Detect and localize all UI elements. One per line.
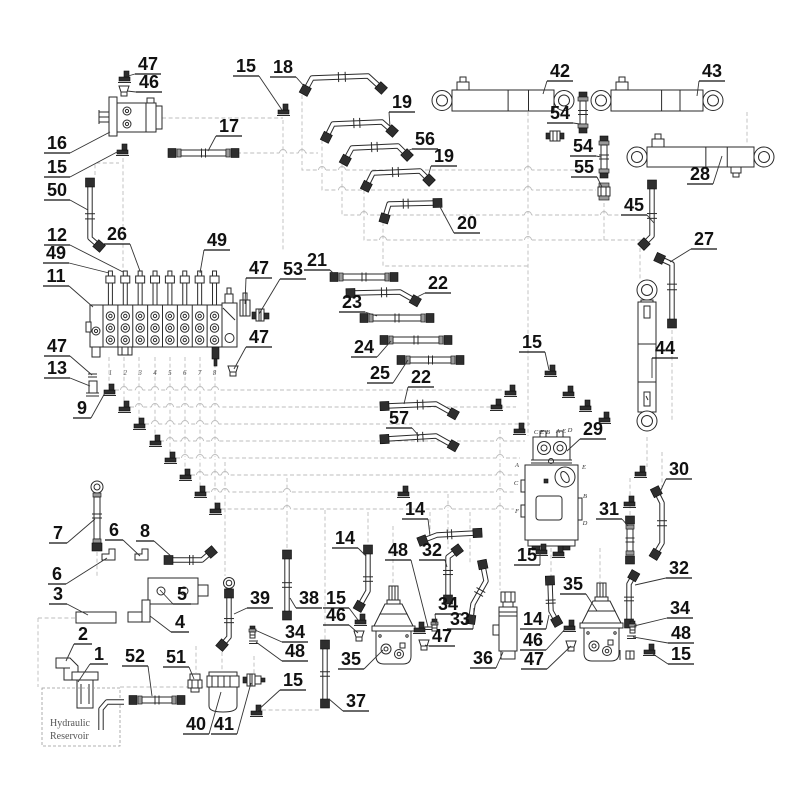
- callout-57: 57: [386, 408, 412, 428]
- svg-text:14: 14: [523, 609, 543, 629]
- svg-text:19: 19: [434, 146, 454, 166]
- callout-45: 45: [621, 195, 647, 215]
- svg-text:12: 12: [47, 225, 67, 245]
- callout-1: 1: [90, 644, 108, 664]
- elbow-fitting: [118, 401, 131, 413]
- svg-text:Reservoir: Reservoir: [50, 731, 90, 742]
- plug-46c: [354, 631, 364, 641]
- callout-47: 47: [521, 649, 547, 669]
- callout-55: 55: [571, 157, 597, 177]
- component-36: [493, 592, 517, 659]
- hose-19: [320, 118, 398, 143]
- hose-7: [91, 481, 103, 551]
- svg-text:54: 54: [550, 103, 570, 123]
- svg-text:B: B: [546, 429, 550, 436]
- svg-text:6: 6: [52, 564, 62, 584]
- elbow-fitting: [504, 385, 517, 397]
- hose-14a: [353, 545, 373, 612]
- svg-text:E: E: [539, 429, 544, 436]
- svg-text:48: 48: [388, 540, 408, 560]
- callout-2: 2: [74, 624, 92, 644]
- svg-text:1: 1: [94, 644, 104, 664]
- svg-text:34: 34: [670, 598, 690, 618]
- svg-text:47: 47: [432, 626, 452, 646]
- fitting-54: [578, 92, 588, 133]
- svg-text:19: 19: [392, 92, 412, 112]
- callout-54: 54: [547, 103, 573, 123]
- callout-19: 19: [389, 92, 415, 112]
- svg-text:E: E: [581, 464, 586, 471]
- callout-36: 36: [470, 648, 496, 668]
- callout-27: 27: [691, 229, 717, 249]
- filter-40-41: [207, 672, 239, 712]
- fitting-34c: [249, 626, 256, 638]
- svg-text:8: 8: [140, 521, 150, 541]
- callout-17: 17: [216, 116, 242, 136]
- callout-4: 4: [171, 612, 189, 632]
- svg-text:22: 22: [428, 273, 448, 293]
- svg-text:1: 1: [109, 369, 113, 377]
- fitting-51: [188, 674, 202, 692]
- elbow-fitting: [413, 622, 426, 634]
- callout-31: 31: [596, 499, 622, 519]
- svg-text:24: 24: [354, 337, 374, 357]
- callout-28: 28: [687, 164, 713, 184]
- callout-8: 8: [136, 521, 154, 541]
- hose-23: [360, 314, 434, 323]
- svg-text:22: 22: [411, 367, 431, 387]
- hose-39: [216, 578, 235, 652]
- callout-35: 35: [338, 649, 364, 669]
- svg-text:C: C: [514, 480, 519, 487]
- svg-text:57: 57: [389, 408, 409, 428]
- callout-50: 50: [44, 180, 70, 200]
- svg-text:56: 56: [415, 129, 435, 149]
- svg-text:3: 3: [53, 584, 63, 604]
- elbow-6b: [135, 549, 148, 560]
- svg-text:7: 7: [53, 523, 63, 543]
- hose-50: [85, 178, 105, 252]
- callout-15: 15: [280, 670, 306, 690]
- callout-26: 26: [104, 224, 130, 244]
- bracket-4: [128, 600, 150, 622]
- callout-15: 15: [44, 157, 70, 177]
- elbow-fitting: [149, 435, 162, 447]
- svg-text:Hydraulic: Hydraulic: [50, 718, 91, 729]
- svg-text:D: D: [582, 520, 588, 527]
- svg-text:6: 6: [183, 369, 187, 377]
- hose-37: [320, 640, 330, 708]
- svg-text:7: 7: [198, 369, 202, 377]
- svg-text:45: 45: [624, 195, 644, 215]
- hose-30: [649, 486, 667, 561]
- svg-text:21: 21: [307, 250, 327, 270]
- svg-text:35: 35: [563, 574, 583, 594]
- callout-18: 18: [270, 57, 296, 77]
- elbow-fitting: [164, 452, 177, 464]
- svg-text:50: 50: [47, 180, 67, 200]
- svg-text:C: C: [534, 429, 539, 436]
- svg-text:31: 31: [599, 499, 619, 519]
- svg-text:42: 42: [550, 61, 570, 81]
- elbow-fitting: [634, 466, 647, 478]
- callout-53: 53: [280, 259, 306, 279]
- fitting-union: [546, 131, 564, 141]
- hose-21: [330, 273, 398, 282]
- valve-bank-11: 12345678: [86, 271, 237, 377]
- callout-14: 14: [520, 609, 546, 629]
- hose-25: [397, 356, 464, 365]
- elbow-15-fitting: [116, 144, 129, 156]
- svg-text:36: 36: [473, 648, 493, 668]
- svg-text:32: 32: [669, 558, 689, 578]
- svg-text:47: 47: [47, 336, 67, 356]
- callout-21: 21: [304, 250, 330, 270]
- callout-15: 15: [519, 332, 545, 352]
- callout-15: 15: [668, 644, 694, 664]
- callout-47: 47: [246, 327, 272, 347]
- elbow-15c: [354, 614, 367, 626]
- callout-47: 47: [429, 626, 455, 646]
- elbow-6a: [102, 549, 115, 560]
- svg-text:48: 48: [671, 623, 691, 643]
- callout-47: 47: [246, 258, 272, 278]
- hose-32r: [624, 570, 640, 628]
- svg-text:20: 20: [457, 213, 477, 233]
- swivel-joint-29: CEBAEDAECBFD: [514, 427, 588, 550]
- callout-12: 12: [44, 225, 70, 245]
- hose-57: [380, 432, 460, 452]
- svg-text:32: 32: [422, 540, 442, 560]
- elbow-fitting: [513, 423, 526, 435]
- svg-text:16: 16: [47, 133, 67, 153]
- elbow-fitting: [562, 386, 575, 398]
- svg-text:15: 15: [522, 332, 542, 352]
- elbow-fitting: [179, 469, 192, 481]
- svg-text:A: A: [514, 462, 519, 469]
- svg-text:47: 47: [524, 649, 544, 669]
- elbow-fitting: [133, 418, 146, 430]
- svg-text:28: 28: [690, 164, 710, 184]
- cylinder-43: [591, 77, 723, 111]
- svg-text:15: 15: [283, 670, 303, 690]
- svg-text:15: 15: [47, 157, 67, 177]
- callout-14: 14: [332, 528, 358, 548]
- callout-47: 47: [135, 54, 161, 74]
- hose-18: [299, 72, 387, 97]
- svg-text:5: 5: [168, 369, 172, 377]
- svg-text:5: 5: [177, 584, 187, 604]
- svg-text:44: 44: [655, 338, 675, 358]
- svg-text:46: 46: [139, 72, 159, 92]
- fitting-47b: [228, 366, 238, 376]
- svg-text:4: 4: [175, 612, 185, 632]
- callout-15: 15: [233, 56, 259, 76]
- svg-text:34: 34: [438, 594, 458, 614]
- hose-24: [380, 336, 452, 345]
- callout-40: 40: [183, 714, 209, 734]
- svg-text:47: 47: [249, 327, 269, 347]
- callout-23: 23: [339, 292, 365, 312]
- callout-11: 11: [43, 266, 69, 286]
- hose-19b: [360, 167, 435, 192]
- callout-24: 24: [351, 337, 377, 357]
- callout-47: 47: [44, 336, 70, 356]
- callout-44: 44: [652, 338, 678, 358]
- svg-text:17: 17: [219, 116, 239, 136]
- svg-text:D: D: [567, 427, 573, 434]
- svg-text:23: 23: [342, 292, 362, 312]
- callout-48: 48: [668, 623, 694, 643]
- callout-13: 13: [44, 358, 70, 378]
- fitting-47c: [419, 640, 429, 650]
- svg-text:15: 15: [671, 644, 691, 664]
- callout-29: 29: [580, 419, 606, 439]
- callout-16: 16: [44, 133, 70, 153]
- svg-text:E: E: [561, 428, 566, 435]
- callout-34: 34: [435, 594, 461, 614]
- callout-22: 22: [425, 273, 451, 293]
- callout-38: 38: [296, 588, 322, 608]
- elbow-fitting: [194, 486, 207, 498]
- svg-text:37: 37: [346, 691, 366, 711]
- callout-48: 48: [385, 540, 411, 560]
- callout-51: 51: [163, 647, 189, 667]
- callout-34: 34: [282, 622, 308, 642]
- elbow-fitting: [397, 486, 410, 498]
- callout-54: 54: [570, 136, 596, 156]
- callout-42: 42: [547, 61, 573, 81]
- callout-15: 15: [514, 545, 540, 565]
- elbow-fitting: [209, 503, 222, 515]
- svg-text:11: 11: [46, 266, 65, 286]
- elbow-fitting: [579, 400, 592, 412]
- motor-35-left: [372, 586, 415, 664]
- callout-19: 19: [431, 146, 457, 166]
- svg-text:26: 26: [107, 224, 127, 244]
- callout-41: 41: [211, 714, 237, 734]
- parts-diagram-page: 12345678CEBAEDAECBFDHydraulicReservoir47…: [0, 0, 800, 800]
- hose-31: [626, 516, 635, 564]
- elbow-15r: [643, 644, 656, 656]
- callout-49: 49: [43, 243, 69, 263]
- svg-text:30: 30: [669, 459, 689, 479]
- svg-text:14: 14: [405, 499, 425, 519]
- callout-48: 48: [282, 641, 308, 661]
- svg-text:13: 13: [47, 358, 67, 378]
- callout-7: 7: [49, 523, 67, 543]
- callout-32: 32: [419, 540, 445, 560]
- svg-text:15: 15: [517, 545, 537, 565]
- svg-text:B: B: [583, 493, 587, 500]
- callout-6: 6: [48, 564, 66, 584]
- elbow-fitting: [544, 365, 557, 377]
- svg-text:53: 53: [283, 259, 303, 279]
- fitting-55: [598, 183, 610, 200]
- elbow-fitting: [623, 496, 636, 508]
- callout-34: 34: [667, 598, 693, 618]
- callout-46: 46: [323, 605, 349, 625]
- flange-1: [72, 672, 98, 708]
- hose-38: [282, 550, 292, 620]
- svg-text:40: 40: [186, 714, 206, 734]
- hose-20: [379, 198, 442, 224]
- callout-6: 6: [105, 520, 123, 540]
- elbow-47-fitting: [118, 71, 131, 83]
- elbow-fitting: [490, 399, 503, 411]
- svg-text:9: 9: [77, 398, 87, 418]
- hose-8: [164, 546, 217, 565]
- callout-22: 22: [408, 367, 434, 387]
- svg-text:49: 49: [46, 243, 66, 263]
- svg-text:47: 47: [249, 258, 269, 278]
- bar-3: [76, 612, 116, 623]
- fitting-34r: [629, 621, 636, 633]
- callout-46: 46: [136, 72, 162, 92]
- svg-text:47: 47: [138, 54, 158, 74]
- callout-3: 3: [49, 584, 67, 604]
- pump-16: [99, 97, 162, 136]
- svg-text:29: 29: [583, 419, 603, 439]
- svg-text:55: 55: [574, 157, 594, 177]
- callout-35: 35: [560, 574, 586, 594]
- svg-text:4: 4: [153, 369, 157, 377]
- svg-text:46: 46: [326, 605, 346, 625]
- svg-text:25: 25: [370, 363, 390, 383]
- svg-text:6: 6: [109, 520, 119, 540]
- svg-text:27: 27: [694, 229, 714, 249]
- hydraulic-parts-diagram: 12345678CEBAEDAECBFDHydraulicReservoir47…: [0, 0, 800, 800]
- svg-text:F: F: [514, 508, 520, 515]
- callout-30: 30: [666, 459, 692, 479]
- elbow-fitting: [552, 546, 565, 558]
- svg-text:14: 14: [335, 528, 355, 548]
- callout-25: 25: [367, 363, 393, 383]
- hose-56: [339, 142, 413, 167]
- svg-text:41: 41: [214, 714, 234, 734]
- svg-text:18: 18: [273, 57, 293, 77]
- callout-9: 9: [73, 398, 91, 418]
- svg-text:51: 51: [166, 647, 186, 667]
- svg-text:2: 2: [124, 369, 128, 377]
- svg-text:49: 49: [207, 230, 227, 250]
- svg-text:A: A: [555, 428, 560, 435]
- svg-text:48: 48: [285, 641, 305, 661]
- svg-text:39: 39: [250, 588, 270, 608]
- svg-text:54: 54: [573, 136, 593, 156]
- callout-14: 14: [402, 499, 428, 519]
- svg-text:3: 3: [137, 369, 142, 377]
- svg-text:15: 15: [236, 56, 256, 76]
- svg-text:34: 34: [285, 622, 305, 642]
- hose-52: [129, 696, 185, 705]
- callout-43: 43: [699, 61, 725, 81]
- suction-tube: [101, 702, 124, 730]
- fitting-15r: [620, 650, 634, 660]
- svg-text:46: 46: [523, 630, 543, 650]
- fitting-41: [243, 674, 265, 686]
- callout-49: 49: [204, 230, 230, 250]
- svg-text:8: 8: [213, 369, 217, 377]
- callout-52: 52: [122, 646, 148, 666]
- callout-20: 20: [454, 213, 480, 233]
- callout-39: 39: [247, 588, 273, 608]
- svg-text:2: 2: [78, 624, 88, 644]
- callout-32: 32: [666, 558, 692, 578]
- callout-37: 37: [343, 691, 369, 711]
- svg-text:35: 35: [341, 649, 361, 669]
- hose-17: [168, 149, 239, 158]
- svg-text:43: 43: [702, 61, 722, 81]
- svg-text:52: 52: [125, 646, 145, 666]
- callout-46: 46: [520, 630, 546, 650]
- svg-text:38: 38: [299, 588, 319, 608]
